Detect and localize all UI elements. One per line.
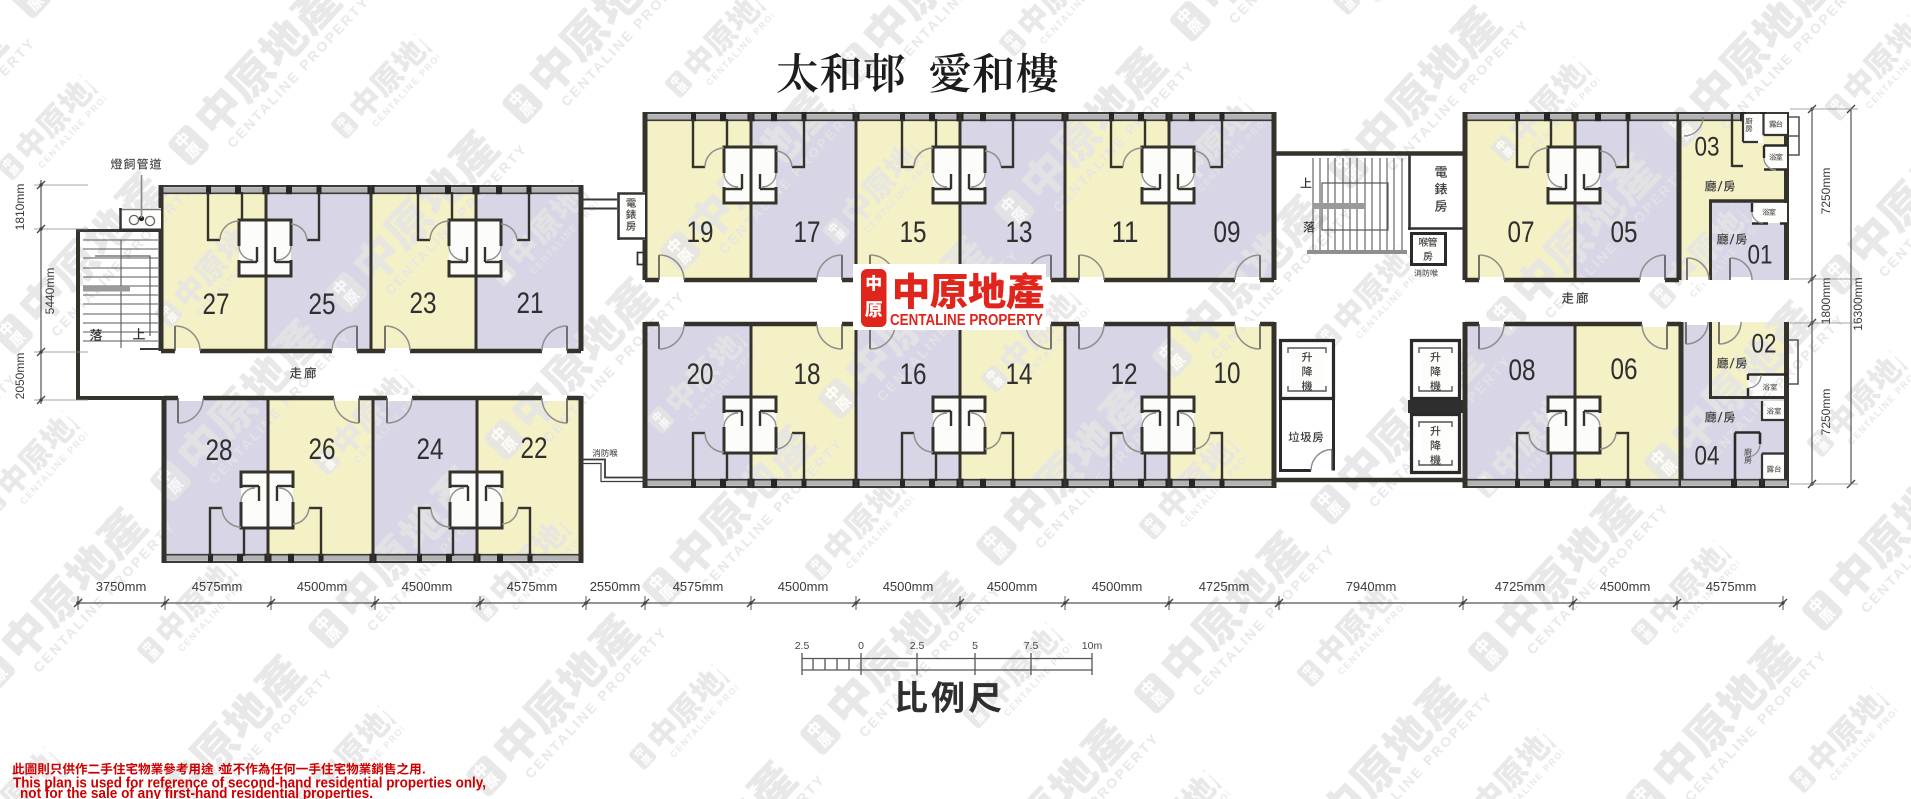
svg-text:4500mm: 4500mm (1092, 579, 1143, 594)
svg-text:14: 14 (1006, 358, 1033, 391)
svg-text:5440mm: 5440mm (43, 268, 57, 315)
svg-text:4725mm: 4725mm (1495, 579, 1546, 594)
svg-text:02: 02 (1752, 329, 1777, 359)
svg-text:11: 11 (1112, 216, 1139, 249)
svg-text:1800mm: 1800mm (1819, 278, 1833, 325)
svg-text:4575mm: 4575mm (192, 579, 243, 594)
svg-text:4500mm: 4500mm (297, 579, 348, 594)
svg-text:5: 5 (972, 640, 978, 652)
svg-text:2050mm: 2050mm (13, 353, 27, 400)
svg-text:3750mm: 3750mm (96, 579, 147, 594)
svg-text:4575mm: 4575mm (673, 579, 724, 594)
svg-text:25: 25 (309, 288, 336, 321)
svg-text:15: 15 (900, 216, 927, 249)
svg-text:16300mm: 16300mm (1851, 277, 1865, 330)
svg-text:2.5: 2.5 (795, 640, 810, 652)
svg-text:10: 10 (1214, 357, 1241, 390)
svg-text:0: 0 (858, 640, 864, 652)
svg-text:28: 28 (206, 434, 233, 467)
svg-text:1810mm: 1810mm (13, 184, 27, 231)
svg-text:not for the sale of any first-: not for the sale of any first-hand resid… (20, 786, 373, 799)
svg-text:19: 19 (687, 216, 714, 249)
svg-text:17: 17 (794, 216, 821, 249)
svg-text:16: 16 (900, 358, 927, 391)
svg-text:20: 20 (687, 358, 714, 391)
svg-text:7250mm: 7250mm (1819, 168, 1833, 215)
svg-text:04: 04 (1695, 441, 1720, 471)
svg-text:12: 12 (1111, 358, 1138, 391)
svg-text:4500mm: 4500mm (883, 579, 934, 594)
svg-text:7940mm: 7940mm (1346, 579, 1397, 594)
svg-text:4575mm: 4575mm (1706, 579, 1757, 594)
svg-text:10m: 10m (1082, 640, 1103, 652)
svg-text:4500mm: 4500mm (778, 579, 829, 594)
svg-text:24: 24 (417, 433, 444, 466)
svg-text:2550mm: 2550mm (590, 579, 641, 594)
svg-text:26: 26 (309, 433, 336, 466)
svg-text:03: 03 (1695, 132, 1720, 162)
svg-text:06: 06 (1611, 353, 1638, 386)
svg-text:05: 05 (1611, 216, 1638, 249)
svg-text:2.5: 2.5 (910, 640, 925, 652)
svg-text:.: . (422, 762, 426, 777)
svg-text:13: 13 (1006, 216, 1033, 249)
svg-text:18: 18 (794, 358, 821, 391)
svg-text:4725mm: 4725mm (1199, 579, 1250, 594)
svg-text:7250mm: 7250mm (1819, 389, 1833, 436)
svg-text:09: 09 (1214, 216, 1241, 249)
svg-text:4500mm: 4500mm (402, 579, 453, 594)
svg-text:4575mm: 4575mm (507, 579, 558, 594)
svg-text:21: 21 (517, 287, 544, 320)
svg-text:23: 23 (410, 287, 437, 320)
svg-text:4500mm: 4500mm (1600, 579, 1651, 594)
svg-text:4500mm: 4500mm (987, 579, 1038, 594)
svg-text:7.5: 7.5 (1024, 640, 1039, 652)
svg-text:27: 27 (203, 288, 230, 321)
svg-text:07: 07 (1508, 216, 1535, 249)
svg-text:CENTALINE PROPERTY: CENTALINE PROPERTY (890, 312, 1044, 329)
svg-text:01: 01 (1748, 240, 1773, 270)
svg-text:08: 08 (1509, 354, 1536, 387)
svg-text:22: 22 (521, 432, 548, 465)
